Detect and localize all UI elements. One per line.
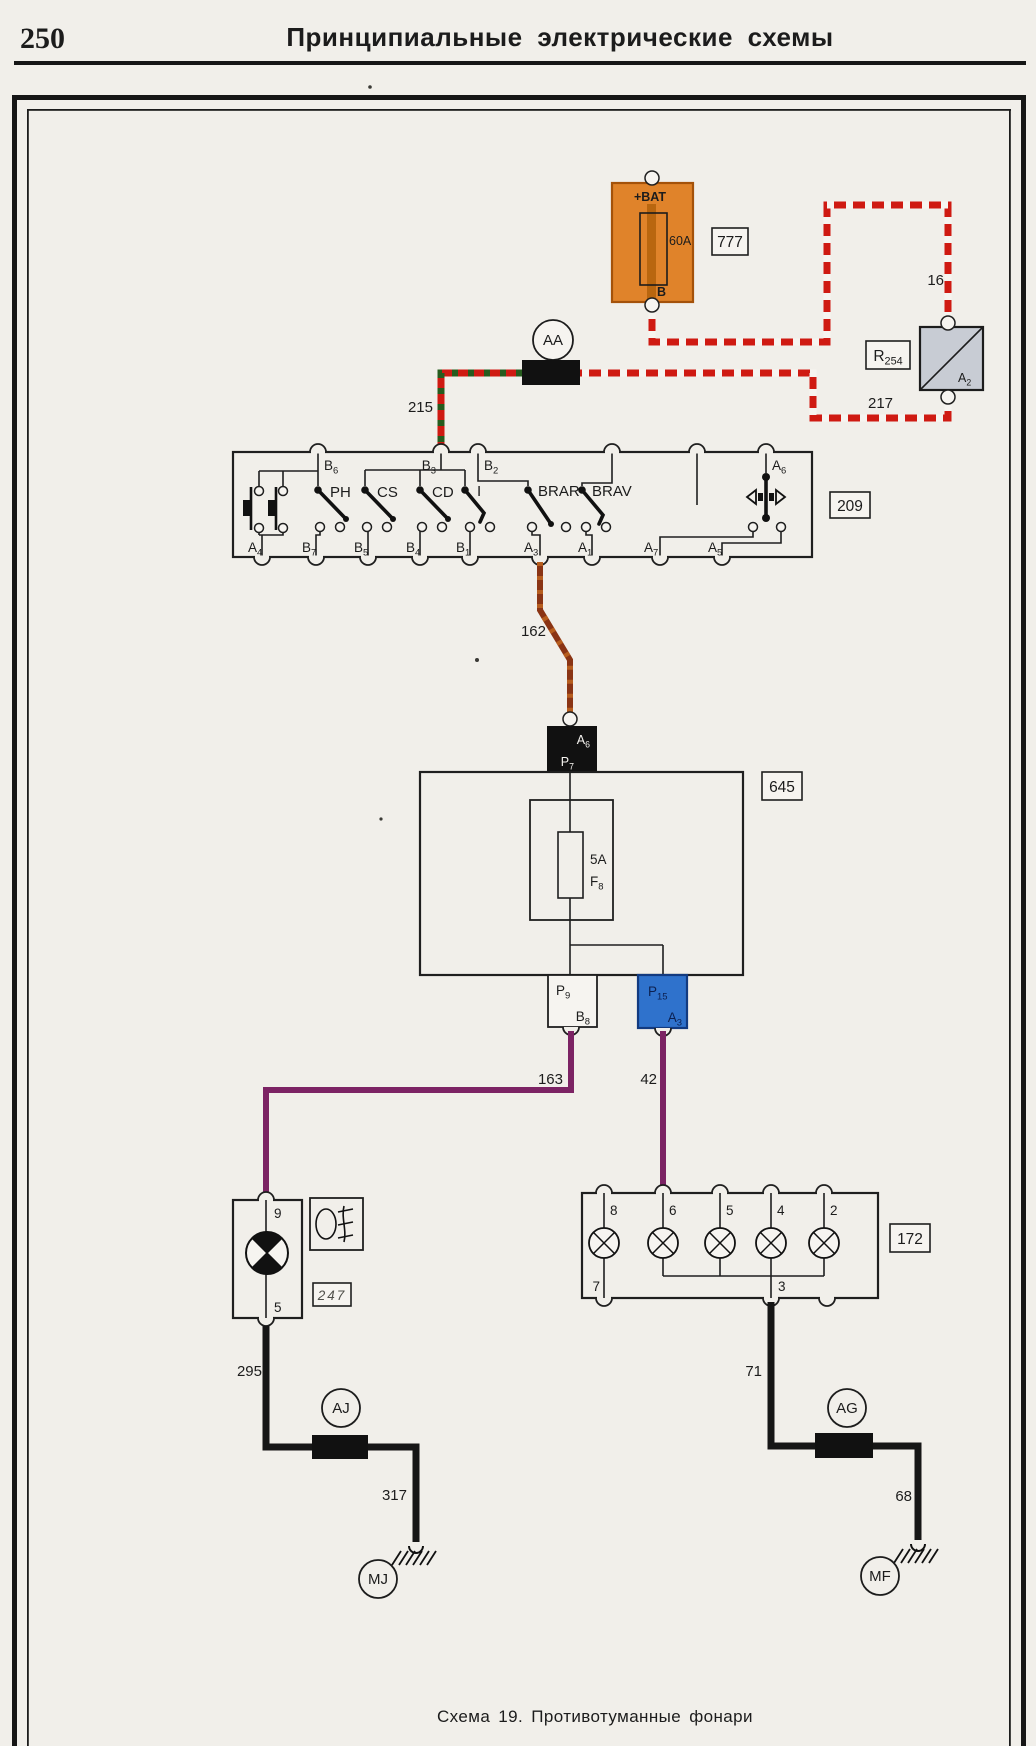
top-terminal-bumps (310, 444, 774, 452)
ground-mj-label: MJ (368, 1571, 388, 1588)
wire-162-path: 162 (521, 562, 570, 712)
pin-5: 5 (726, 1203, 734, 1218)
lamp-symbol-left (246, 1232, 288, 1274)
battery-b-label: B (657, 285, 666, 299)
page-number: 250 (20, 22, 65, 55)
ref-247-label: 247 (317, 1288, 347, 1303)
switch-brar: BRAR (538, 483, 580, 500)
battery-top-terminal (645, 171, 659, 185)
ground-run-left: AJ 295 317 MJ (237, 1326, 436, 1598)
ground-symbol-mf (894, 1544, 938, 1563)
fuse-f8-label: F8 (590, 874, 604, 893)
fuse-5a-label: 5A (590, 852, 607, 867)
wire-163-label: 163 (538, 1071, 563, 1088)
ref-209-label: 209 (837, 498, 863, 515)
pin-2: 2 (830, 1203, 838, 1218)
page-header: 250 Принципиальные электрические схемы (14, 22, 1026, 65)
schematic-page: 250 Принципиальные электрические схемы +… (0, 0, 1036, 1746)
pin-4: 4 (777, 1203, 785, 1218)
switch-cd: CD (432, 484, 454, 501)
junction-aj-splice (312, 1435, 368, 1459)
wire-42-path: 42 (640, 1031, 663, 1189)
pin-a6: A6 (772, 458, 786, 477)
ground-run-right: AG 71 68 MF (745, 1302, 938, 1595)
junction-aa-splice (522, 360, 580, 385)
wire-317-label: 317 (382, 1487, 407, 1504)
junction-ag-splice (815, 1433, 873, 1458)
switch-unit-209: B6 B3 B2 A6 A4 B7 B5 B4 B1 A3 A1 A7 A5 P… (233, 444, 812, 565)
ref-247: 247 (313, 1283, 351, 1306)
diagram-caption: Схема 19. Противотуманные фонари (437, 1707, 753, 1726)
page-title: Принципиальные электрические схемы (286, 22, 833, 52)
illumination-symbol (747, 473, 785, 522)
wire-163-path: 163 (266, 1031, 571, 1192)
wire-16-label: 16 (927, 272, 944, 289)
wire-295-label: 295 (237, 1363, 262, 1380)
battery-bottom-terminal (645, 298, 659, 312)
wire-215-path (441, 373, 522, 447)
wire-68-label: 68 (895, 1488, 912, 1505)
junction-aj-label: AJ (332, 1400, 350, 1417)
ref-645: 645 (762, 772, 802, 800)
bottom-terminal-bumps (254, 557, 730, 565)
switch-ph: PH (330, 484, 351, 501)
wire-217-label: 217 (868, 395, 893, 412)
ground-mf-label: MF (869, 1568, 891, 1585)
junction-aa-label: AA (543, 332, 563, 349)
ref-172-label: 172 (897, 1231, 923, 1248)
junction-aa: AA 215 (408, 320, 580, 416)
wire-215-label: 215 (408, 399, 433, 416)
pin-7: 7 (592, 1279, 600, 1294)
pin-a7: A7 (644, 540, 658, 559)
wire-162-label: 162 (521, 623, 546, 640)
fuse-f8-symbol (558, 832, 583, 898)
battery-unit: +BAT 60A B (612, 171, 693, 312)
wire-42-label: 42 (640, 1071, 657, 1088)
ground-symbol-mj (392, 1546, 436, 1565)
pin-a3: A3 (524, 540, 538, 559)
pin-8: 8 (610, 1203, 618, 1218)
junction-ag-label: AG (836, 1400, 858, 1417)
fog-light-icon (310, 1198, 363, 1250)
pin-b6: B6 (324, 458, 338, 477)
ref-645-label: 645 (769, 779, 795, 796)
switch-i: I (477, 483, 481, 500)
fuse-unit-645: A6 P7 5A F8 P9 B8 P15 A3 (420, 712, 743, 1036)
fuse-rating-label: 60A (669, 234, 692, 248)
pin-b3: B3 (422, 458, 436, 477)
left-fog-lamp: 9 5 247 (233, 1192, 363, 1326)
pin-6: 6 (669, 1203, 677, 1218)
switch-cs: CS (377, 484, 398, 501)
lamp-pin-9: 9 (274, 1206, 282, 1221)
pin-b2: B2 (484, 458, 498, 477)
battery-plus-label: +BAT (634, 190, 666, 204)
switch-brav: BRAV (592, 483, 632, 500)
relay-r254: A2 R254 16 217 (866, 272, 983, 412)
header-rule (14, 61, 1026, 65)
ref-209: 209 (830, 492, 870, 518)
ref-777-label: 777 (717, 234, 743, 251)
lamp-pin-5: 5 (274, 1300, 282, 1315)
ref-172: 172 (890, 1224, 930, 1252)
lamp-unit-172: 8 6 5 4 2 7 3 (582, 1185, 878, 1306)
ref-777: 777 (712, 228, 748, 255)
wire-71-label: 71 (745, 1363, 762, 1380)
lamp-symbols-172 (589, 1228, 839, 1258)
pin-3: 3 (778, 1279, 786, 1294)
